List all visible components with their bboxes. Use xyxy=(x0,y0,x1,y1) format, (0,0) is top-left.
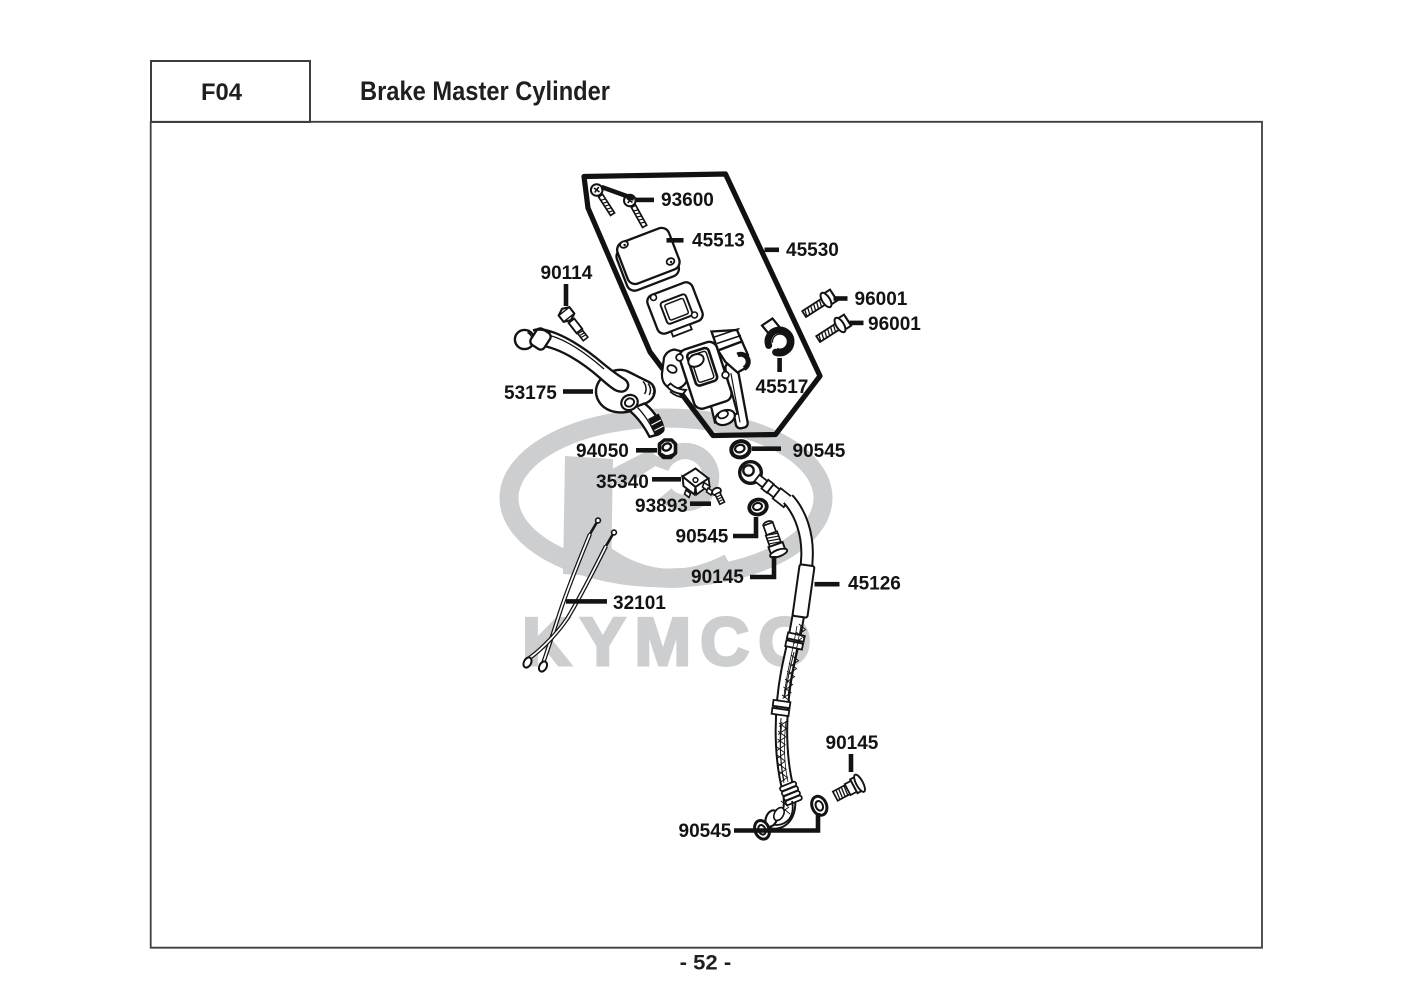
svg-text:45517: 45517 xyxy=(756,377,809,398)
svg-text:F04: F04 xyxy=(201,79,243,106)
svg-text:90545: 90545 xyxy=(793,441,846,462)
svg-text:45126: 45126 xyxy=(848,574,901,595)
svg-text:90145: 90145 xyxy=(691,567,744,588)
svg-text:Brake Master Cylinder: Brake Master Cylinder xyxy=(360,76,610,106)
svg-text:90545: 90545 xyxy=(676,527,729,548)
svg-text:94050: 94050 xyxy=(576,441,629,462)
svg-text:93893: 93893 xyxy=(635,496,688,517)
svg-text:93600: 93600 xyxy=(661,190,714,211)
svg-text:90145: 90145 xyxy=(826,733,879,754)
svg-text:KYMCO: KYMCO xyxy=(522,604,820,680)
svg-text:90114: 90114 xyxy=(541,263,593,284)
svg-text:32101: 32101 xyxy=(613,593,666,614)
svg-text:45530: 45530 xyxy=(786,240,839,261)
svg-text:- 52 -: - 52 - xyxy=(680,952,732,975)
svg-text:96001: 96001 xyxy=(868,314,921,335)
svg-text:96001: 96001 xyxy=(855,289,908,310)
svg-text:90545: 90545 xyxy=(679,821,732,842)
svg-text:53175: 53175 xyxy=(504,383,557,404)
svg-text:45513: 45513 xyxy=(692,231,745,252)
svg-text:35340: 35340 xyxy=(596,472,649,493)
